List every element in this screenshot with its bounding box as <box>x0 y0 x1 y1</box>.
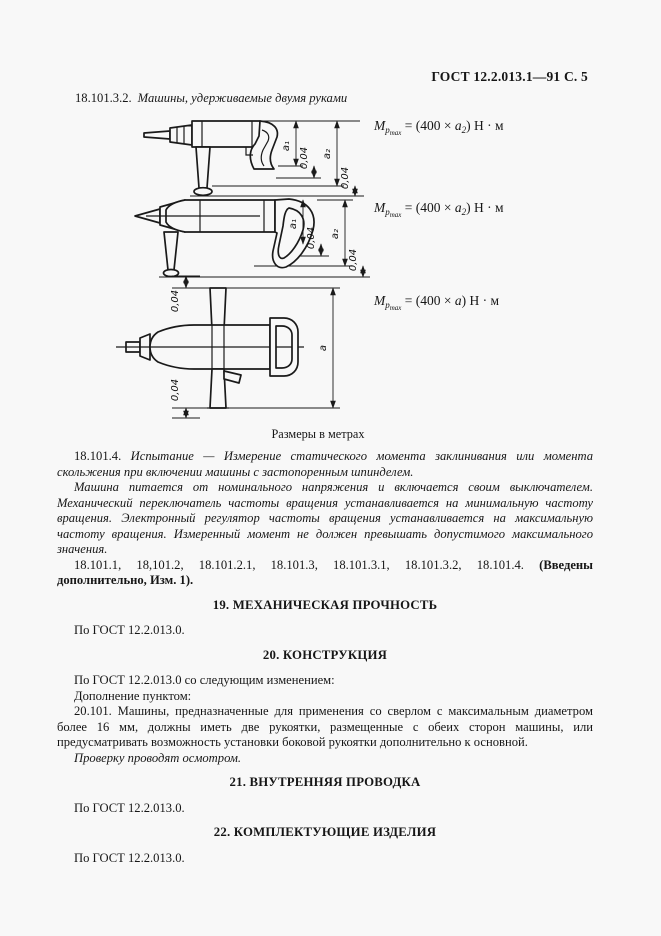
dim-label-004-top: 0,04 <box>170 290 181 312</box>
section-20-body: По ГОСТ 12.2.013.0 со следующим изменени… <box>57 673 593 689</box>
formula-subsubscript: max <box>390 304 402 312</box>
section-20-supplement: Дополнение пунктом: <box>57 689 593 705</box>
dim-label-004-bottom: 0,04 <box>170 379 181 401</box>
formula-torque-3: Mрmax = (400 × a) Н · м <box>374 293 589 312</box>
dim-label-004-upper: 0,04 <box>306 227 317 249</box>
formula-argument: a <box>455 293 462 308</box>
dim-label-a2: a₂ <box>330 229 341 239</box>
section-20-heading: 20. КОНСТРУКЦИЯ <box>57 648 593 664</box>
references-list: 18.101.1, 18,101.2, 18.101.2.1, 18.101.3… <box>74 558 524 572</box>
formula-equals: = (400 × <box>401 200 454 215</box>
section-19-body: По ГОСТ 12.2.013.0. <box>57 623 593 639</box>
formula-units: ) Н · м <box>462 293 499 308</box>
dim-label-004-upper: 0,04 <box>299 147 310 169</box>
formula-torque-1: Mрmax = (400 × a2) Н · м <box>374 118 589 137</box>
dim-label-a2: a₂ <box>322 149 333 159</box>
formula-variable: M <box>374 118 385 133</box>
drill-outline <box>144 121 277 195</box>
machine-top-view-drawing: 0,04 0,04 a <box>100 268 360 424</box>
figures-caption: Размеры в метрах <box>238 427 398 442</box>
clause-18-101-3-2-title: 18.101.3.2.Машины, удерживаемые двумя ру… <box>75 91 347 106</box>
section-22-heading: 22. КОМПЛЕКТУЮЩИЕ ИЗДЕЛИЯ <box>57 825 593 841</box>
section-20-check-note: Проверку проводят осмотром. <box>57 751 593 767</box>
formula-equals: = (400 × <box>401 293 454 308</box>
dim-label-a1: a₁ <box>288 219 299 229</box>
drill-outline <box>135 199 314 277</box>
section-20-clause-20-101: 20.101. Машины, предназначенные для прим… <box>57 704 593 751</box>
clause-title-text: Машины, удерживаемые двумя руками <box>138 91 348 105</box>
machine-outline <box>116 288 304 408</box>
formula-equals: = (400 × <box>401 118 454 133</box>
clause-text: Испытание — Измерение статического момен… <box>57 449 593 479</box>
formula-variable: M <box>374 293 385 308</box>
formula-units: ) Н · м <box>466 118 503 133</box>
section-21-heading: 21. ВНУТРЕННЯЯ ПРОВОДКА <box>57 775 593 791</box>
clause-references: 18.101.1, 18,101.2, 18.101.2.1, 18.101.3… <box>57 558 593 589</box>
formula-variable: M <box>374 200 385 215</box>
formula-argument: a <box>455 118 462 133</box>
formula-subsubscript: max <box>390 211 402 219</box>
clause-18-101-4: 18.101.4. Испытание — Измерение статичес… <box>57 449 593 480</box>
clause-number: 18.101.4. <box>74 449 121 463</box>
test-procedure-paragraph: Машина питается от номинального напряжен… <box>57 480 593 558</box>
formula-argument: a <box>455 200 462 215</box>
figure-machine-top-view: 0,04 0,04 a <box>100 268 360 429</box>
formula-subsubscript: max <box>390 129 402 137</box>
formula-torque-2: Mрmax = (400 × a2) Н · м <box>374 200 589 219</box>
section-22-body: По ГОСТ 12.2.013.0. <box>57 851 593 867</box>
section-19-heading: 19. МЕХАНИЧЕСКАЯ ПРОЧНОСТЬ <box>57 598 593 614</box>
section-21-body: По ГОСТ 12.2.013.0. <box>57 801 593 817</box>
formula-units: ) Н · м <box>466 200 503 215</box>
page-header: ГОСТ 12.2.013.1—91 С. 5 <box>330 69 588 85</box>
clause-number: 18.101.3.2. <box>75 91 132 105</box>
document-text-column: 18.101.4. Испытание — Измерение статичес… <box>57 449 593 866</box>
dim-label-a: a <box>318 345 329 351</box>
dim-label-a1: a₁ <box>281 141 292 151</box>
